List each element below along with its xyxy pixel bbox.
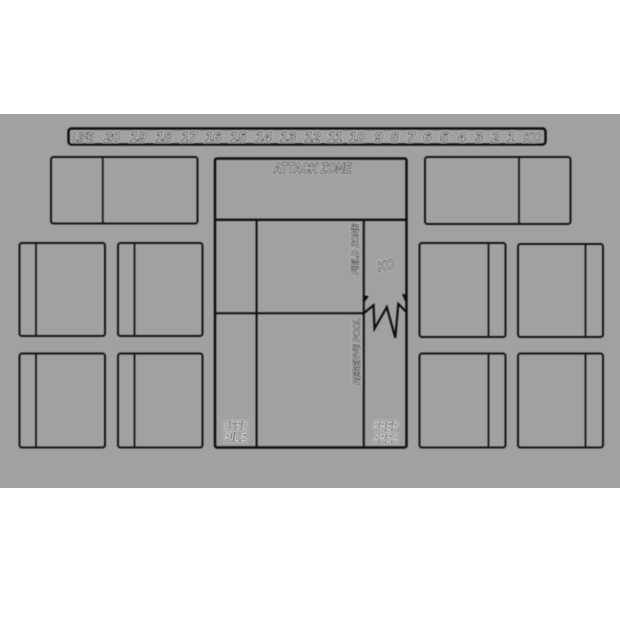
svg-text:14: 14	[255, 130, 271, 146]
svg-text:17: 17	[181, 130, 198, 146]
svg-text:18: 18	[155, 130, 172, 146]
svg-text:FIELD ZONE: FIELD ZONE	[349, 223, 361, 275]
svg-text:LIFE: LIFE	[72, 130, 94, 145]
svg-text:10: 10	[349, 130, 365, 146]
svg-text:PILE: PILE	[224, 431, 248, 445]
svg-text:5: 5	[440, 130, 449, 146]
svg-text:6: 6	[423, 130, 432, 146]
svg-text:4: 4	[457, 130, 466, 146]
svg-text:3: 3	[475, 130, 483, 146]
svg-text:16: 16	[205, 130, 222, 146]
svg-text:1: 1	[507, 130, 515, 146]
svg-text:9: 9	[374, 130, 382, 146]
svg-text:8: 8	[390, 130, 399, 146]
svg-text:20: 20	[103, 130, 120, 146]
svg-text:AREA: AREA	[372, 431, 399, 445]
svg-text:ATTACK ZONE: ATTACK ZONE	[273, 160, 352, 177]
svg-text:KO: KO	[524, 130, 542, 145]
svg-text:15: 15	[230, 130, 247, 146]
svg-text:13: 13	[280, 130, 296, 146]
svg-text:12: 12	[304, 130, 320, 146]
svg-text:11: 11	[327, 130, 342, 146]
svg-text:7: 7	[407, 130, 416, 146]
svg-text:19: 19	[130, 130, 146, 146]
svg-text:RESERVE POOL: RESERVE POOL	[351, 318, 363, 385]
svg-text:2: 2	[490, 130, 499, 146]
